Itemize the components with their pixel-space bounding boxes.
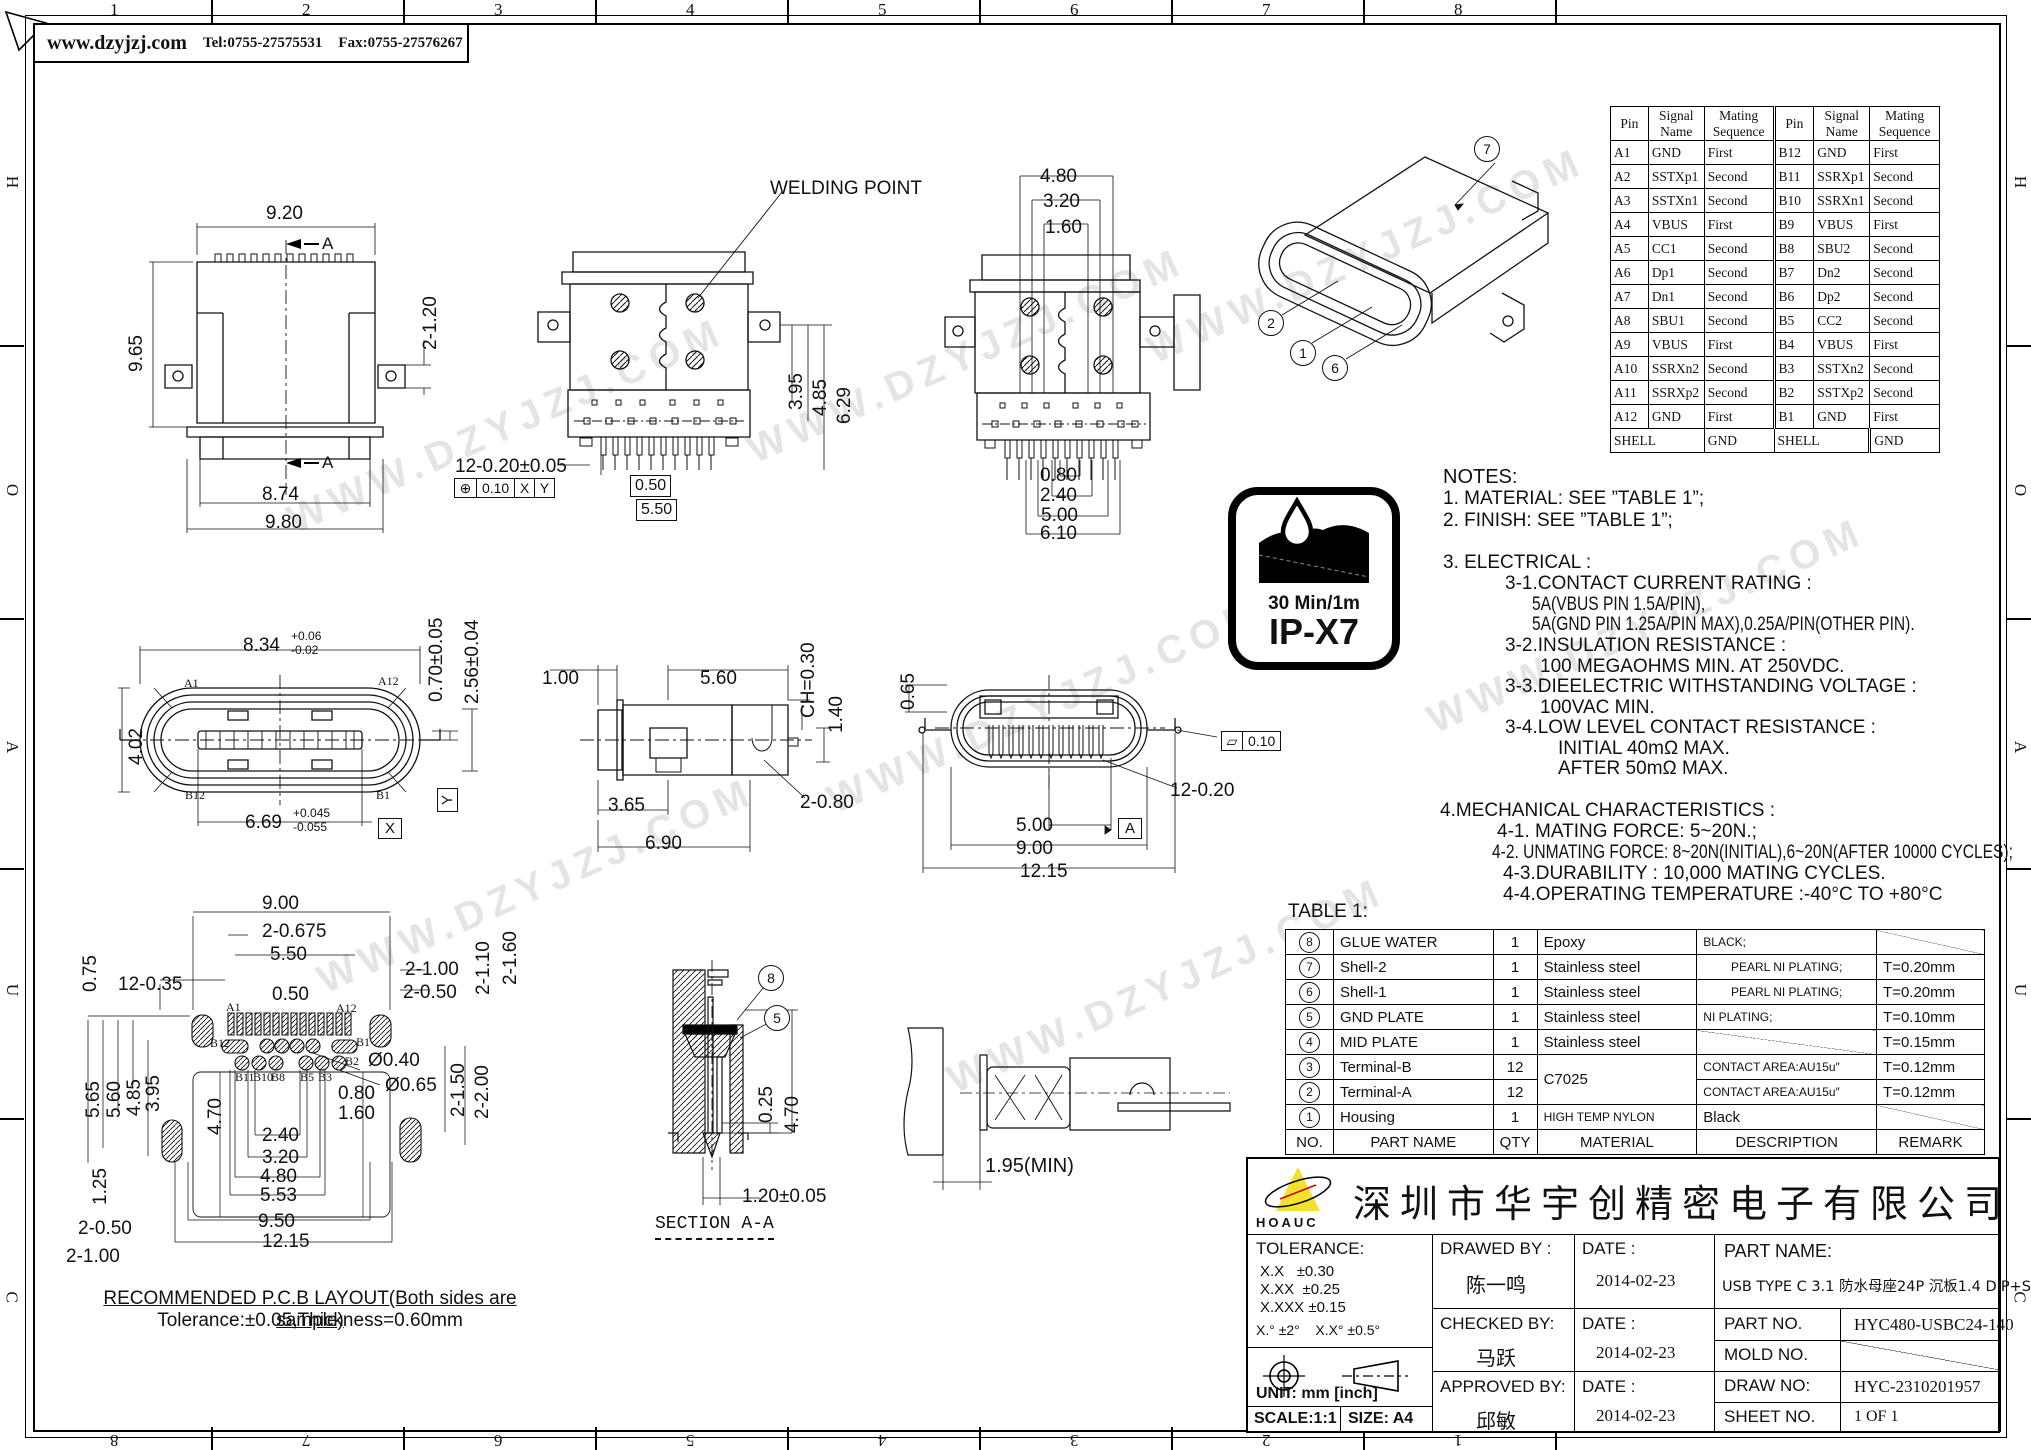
table-row: A1GNDFirstB12GNDFirst [1611,141,1940,165]
cell: Second [1870,357,1940,381]
pin-label: B1 [356,1035,370,1050]
title-block: HOAUC 深圳市华宇创精密电子有限公司 TOLERANCE: X.X ±0.3… [1246,1157,2000,1433]
cell: First [1704,405,1774,429]
cell: Dn1 [1648,285,1704,309]
item-number: 8 [1299,932,1320,953]
basic-dim: 5.50 [636,499,677,521]
item-number: 4 [1299,1032,1320,1053]
dim-label: 5.53 [260,1185,297,1207]
dim-label: 5.60 [104,1081,126,1118]
cell: NI PLATING; [1697,1005,1877,1030]
col-header: Mating Sequence [1704,107,1774,141]
cell [1877,930,1985,955]
side-view-drawing [520,610,880,860]
pin-label: B2 [345,1054,359,1069]
item-number: 2 [1299,1082,1320,1103]
table-row: 6 Shell-1 1 Stainless steel PEARL NI PLA… [1286,980,1985,1005]
callout-number: 2 [1267,315,1275,331]
cell: First [1704,141,1774,165]
col-header: QTY [1493,1130,1537,1155]
dim-label: 0.80 [1040,465,1077,487]
cell: Second [1870,285,1940,309]
cell: MID PLATE [1333,1030,1493,1055]
col-header: NO. [1286,1130,1334,1155]
col-header: MATERIAL [1537,1130,1697,1155]
date-label: DATE : [1582,1314,1636,1334]
table-row: A7Dn1SecondB6Dp2Second [1611,285,1940,309]
table-row: 7 Shell-2 1 Stainless steel PEARL NI PLA… [1286,955,1985,980]
tolerance-row: X.XXX ±0.15 [1260,1299,1346,1316]
table-row: 5 GND PLATE 1 Stainless steel NI PLATING… [1286,1005,1985,1030]
note-line: 4-4.OPERATING TEMPERATURE :-40°C TO +80°… [1503,884,1942,906]
zone-number: 6 [1070,0,1079,20]
table-footer-row: NO. PART NAME QTY MATERIAL DESCRIPTION R… [1286,1130,1985,1155]
cell: Terminal-A [1333,1080,1493,1105]
sheet-no-value: 1 OF 1 [1854,1408,1898,1426]
ruler-tick [979,1427,981,1450]
cell: HIGH TEMP NYLON [1537,1105,1697,1130]
callout-balloon: 7 [1474,136,1500,162]
tolerance-row: X.X ±0.30 [1260,1263,1334,1280]
table-row: A9VBUSFirstB4VBUSFirst [1611,333,1940,357]
table-row: A5CC1SecondB8SBU2Second [1611,237,1940,261]
cell: SSRXp1 [1814,165,1870,189]
cell: T=0.10mm [1877,1005,1985,1030]
dim-label: 0.65 [898,673,920,710]
draw-no-value: HYC-2310201957 [1854,1377,1981,1397]
item-number: 1 [1299,1107,1320,1128]
dim-label: 1.20±0.05 [742,1186,826,1208]
cell: Shell-2 [1333,955,1493,980]
dim-label: 8.74 [262,484,299,506]
table-row: A2SSTXp1SecondB11SSRXp1Second [1611,165,1940,189]
pin-assignment-table: Pin Signal Name Mating Sequence Pin Sign… [1610,106,1940,453]
section-letter: A [322,234,333,254]
zone-number: 4 [686,0,695,20]
zone-letter: A [2,741,22,753]
cell: Dp2 [1814,285,1870,309]
ruler-tick [211,1427,213,1450]
zone-letter: H [2,176,22,188]
cell: GND [1648,405,1704,429]
cell: SHELL [1774,429,1870,453]
fax-text: Fax:0755-27576267 [338,35,462,52]
unit-label: UNIT: mm [inch] [1256,1385,1378,1403]
ip-rating: IP-X7 [1269,615,1359,649]
header-contact-bar: www.dzyjzj.com Tel:0755-27575531 Fax:075… [33,23,469,63]
cell: Second [1870,165,1940,189]
datum-box: A [1118,818,1142,839]
section-marker: A [286,453,333,473]
table-row: 8 GLUE WATER 1 Epoxy BLACK; [1286,930,1985,955]
mold-no-empty-cell [1841,1341,2000,1370]
col-header: Signal Name [1814,107,1870,141]
item-number: 3 [1299,1057,1320,1078]
cell: Housing [1333,1105,1493,1130]
dim-label: 0.75 [80,955,102,992]
dim-label: 0.70±0.05 [426,618,448,702]
datum-ref: X [514,478,535,498]
zone-number: 5 [686,1430,695,1450]
cell: A9 [1611,333,1649,357]
date-label: DATE : [1582,1377,1636,1397]
note-line: INITIAL 40mΩ MAX. [1558,738,1730,760]
cell: T=0.15mm [1877,1030,1985,1055]
section-letter: A [322,453,333,473]
cell: B10 [1774,189,1814,213]
dim-label: 9.20 [266,203,303,225]
cell: A10 [1611,357,1649,381]
cell: Second [1870,189,1940,213]
cell: B12 [1774,141,1814,165]
dim-label: 2.56±0.04 [462,620,484,704]
top-view2-drawing [940,150,1230,550]
isometric-view-drawing [1250,85,1550,385]
note-line: 4-2. UNMATING FORCE: 8~20N(INITIAL),6~20… [1492,842,2013,864]
section-title: SECTION A-A [655,1214,774,1240]
cell: BLACK; [1697,930,1877,955]
cell: Second [1870,261,1940,285]
zone-letter: U [2,984,22,996]
datum-box: X [378,818,402,839]
approved-by-name: 邱敏 [1476,1405,1516,1434]
dim-label: 12-0.35 [118,974,182,996]
dim-label: 3.95 [786,373,808,410]
company-name: 深圳市华宇创精密电子有限公司 [1353,1173,2011,1228]
ruler-tick [1171,0,1173,23]
cell: GND [1814,141,1870,165]
cell: A6 [1611,261,1649,285]
pcb-edge-view-drawing [900,1020,1240,1250]
cell: SSTXp1 [1648,165,1704,189]
zone-number: 7 [302,1430,311,1450]
zone-number: 3 [1070,1430,1079,1450]
dim-tol-lower: -0.055 [293,820,327,834]
size-label: SIZE: A4 [1348,1410,1413,1428]
table-row: A12GNDFirstB1GNDFirst [1611,405,1940,429]
dim-label: 2-1.60 [500,931,522,985]
cell: GLUE WATER [1333,930,1493,955]
sheet-no-label: SHEET NO. [1724,1407,1815,1427]
cell: B6 [1774,285,1814,309]
dim-label: 2-1.20 [420,296,442,350]
mold-no-label: MOLD NO. [1724,1345,1808,1365]
cell: T=0.20mm [1877,980,1985,1005]
dim-label: 6.69 [245,812,282,834]
table-row: 4 MID PLATE 1 Stainless steel T=0.15mm [1286,1030,1985,1055]
zone-number: 8 [1454,0,1463,20]
cell: 1 [1493,1030,1537,1055]
section-marker: A [286,234,333,254]
bottom-view-drawing [885,640,1305,890]
cell: A5 [1611,237,1649,261]
cell: Shell-1 [1333,980,1493,1005]
cell: VBUS [1814,213,1870,237]
dim-label: 5.50 [270,944,307,966]
cell: Second [1704,309,1774,333]
top-view-drawing [530,170,860,480]
dim-label: 12-0.20±0.05 [455,456,567,478]
note-line: 3-4.LOW LEVEL CONTACT RESISTANCE : [1505,717,1876,739]
cell: A11 [1611,381,1649,405]
cell: First [1704,333,1774,357]
ruler-tick [1171,1427,1173,1450]
drawing-sheet: 1 2 3 4 5 6 7 8 8 7 6 5 4 3 2 1 H O A U … [0,0,2031,1450]
dim-label: 12.15 [262,1231,310,1253]
date-label: DATE : [1582,1239,1636,1259]
dim-label: 6.90 [645,833,682,855]
tolerance-row: X.XX ±0.25 [1260,1281,1340,1298]
dim-label: 2.40 [262,1125,299,1147]
dim-label: 4.02 [126,728,148,765]
part-name-value: USB TYPE C 3.1 防水母座24P 沉板1.4 DIP+SMT [1722,1275,2031,1296]
cell: First [1870,213,1940,237]
col-header: Signal Name [1648,107,1704,141]
cell: Dp1 [1648,261,1704,285]
cell: Terminal-B [1333,1055,1493,1080]
drawn-by-label: DRAWED BY : [1440,1239,1551,1259]
dim-label: 3.65 [608,795,645,817]
ruler-tick [2007,1118,2031,1120]
dim-label: CH=0.30 [798,642,820,718]
cell [1877,1105,1985,1130]
scale-label: SCALE:1:1 [1254,1410,1337,1428]
pin-table-header-row: Pin Signal Name Mating Sequence Pin Sign… [1611,107,1940,141]
ruler-tick [0,868,24,870]
cell: SSRXn1 [1814,189,1870,213]
dim-label: 4.70 [782,1096,804,1133]
approved-by-label: APPROVED BY: [1440,1377,1566,1397]
cell: Stainless steel [1537,955,1697,980]
ruler-tick [2007,868,2031,870]
note-line: AFTER 50mΩ MAX. [1558,758,1728,780]
col-header: Pin [1774,107,1814,141]
cell: SSRXn2 [1648,357,1704,381]
dim-label: 2-0.80 [800,792,854,814]
dim-label: 2-1.50 [448,1063,470,1117]
cell: A3 [1611,189,1649,213]
dim-label: 0.25 [756,1086,778,1123]
cell: Second [1704,189,1774,213]
cell: CONTACT AREA:AU15u″ [1697,1080,1877,1105]
callout-balloon: 8 [758,965,784,991]
company-logo-icon [1258,1165,1338,1215]
dim-tol-upper: +0.06 [291,629,321,643]
cell: 1 [1493,1005,1537,1030]
item-number: 7 [1299,957,1320,978]
zone-number: 1 [110,0,119,20]
item-number: 6 [1299,982,1320,1003]
checked-by-name: 马跃 [1476,1342,1516,1371]
date-value: 2014-02-23 [1596,1271,1675,1291]
dim-label: 5.00 [1016,815,1053,837]
cell: B5 [1774,309,1814,333]
ruler-tick [979,0,981,23]
cell: B8 [1774,237,1814,261]
cell: Second [1870,309,1940,333]
callout-number: 7 [1483,141,1491,157]
zone-number: 6 [494,1430,503,1450]
dim-label: 9.00 [262,893,299,915]
note-line: 2. FINISH: SEE ”TABLE 1”; [1443,510,1673,532]
cell: Second [1704,357,1774,381]
cell: A12 [1611,405,1649,429]
dim-label: 9.50 [258,1211,295,1233]
pin-label: B12 [210,1036,230,1051]
note-line: 3-2.INSULATION RESISTANCE : [1505,635,1786,657]
cell: VBUS [1648,213,1704,237]
cell: SHELL [1611,429,1705,453]
ruler-tick [0,618,24,620]
dim-label: 5.65 [83,1081,105,1118]
note-line: 100VAC MIN. [1540,697,1655,719]
item-number: 5 [1299,1007,1320,1028]
ruler-tick [2007,618,2031,620]
col-header: Mating Sequence [1870,107,1940,141]
callout-balloon: 2 [1258,310,1284,336]
note-line: 5A(GND PIN 1.25A/PIN MAX),0.25A/PIN(OTHE… [1532,614,1915,636]
cell: Stainless steel [1537,980,1697,1005]
zone-number: 7 [1262,0,1271,20]
cell: GND [1870,429,1940,453]
callout-balloon: 6 [1322,355,1348,381]
callout-number: 8 [767,970,775,986]
pin-label: A1 [184,676,199,691]
cell: GND [1814,405,1870,429]
date-value: 2014-02-23 [1596,1343,1675,1363]
col-header: DESCRIPTION [1697,1130,1877,1155]
cell: SSTXn2 [1814,357,1870,381]
cell: SSRXp2 [1648,381,1704,405]
dim-label: 1.60 [1045,217,1082,239]
pin-label: B1 [376,788,390,803]
cell: Second [1704,165,1774,189]
datum-ref: Y [534,478,555,498]
zone-number: 2 [1262,1430,1271,1450]
dim-label: Ø0.40 [368,1050,420,1072]
pin-label: B5 [300,1070,314,1085]
dim-label: 9.65 [126,335,148,372]
cell: SSTXn1 [1648,189,1704,213]
note-line: 1. MATERIAL: SEE ”TABLE 1”; [1443,488,1704,510]
cell: SBU1 [1648,309,1704,333]
cell: 1 [1493,955,1537,980]
dim-label: 4.70 [205,1098,227,1135]
callout-number: 1 [1299,345,1307,361]
dim-label: 2-2.00 [472,1065,494,1119]
note-line: 5A(VBUS PIN 1.5A/PIN), [1532,594,1705,616]
cell: VBUS [1648,333,1704,357]
cell: A7 [1611,285,1649,309]
cell: SBU2 [1814,237,1870,261]
zone-number: 8 [110,1430,119,1450]
dim-label: 1.00 [542,668,579,690]
dim-label: 1.40 [826,696,848,733]
ruler-tick [2007,345,2031,347]
dim-label: 2-1.00 [405,959,459,981]
datum-box: Y [437,788,458,812]
cell: CONTACT AREA:AU15u″ [1697,1055,1877,1080]
position-symbol-icon: ⊕ [454,478,478,498]
position-tolerance-frame: ⊕ 0.10 X Y [455,478,555,498]
cell: 1 [1493,980,1537,1005]
cell: First [1870,405,1940,429]
zone-letter: O [2,484,22,496]
cell: A2 [1611,165,1649,189]
pin-label: A12 [336,1001,357,1016]
cell: T=0.12mm [1877,1055,1985,1080]
note-line: 3-1.CONTACT CURRENT RATING : [1505,573,1812,595]
table1-title: TABLE 1: [1288,901,1368,923]
zone-letter: A [2010,741,2030,753]
dim-label: Ø0.65 [385,1075,437,1097]
callout-balloon: 5 [764,1005,790,1031]
zone-letter: H [2010,176,2030,188]
note-line: 3-3.DIEELECTRIC WITHSTANDING VOLTAGE : [1505,676,1917,698]
dim-label: 0.50 [272,984,309,1006]
flatness-symbol-icon: ▱ [1221,731,1244,751]
dim-label: 8.34 [243,635,280,657]
dim-label: 9.80 [265,512,302,534]
ruler-tick [787,1427,789,1450]
dim-tol-lower: -0.02 [291,643,318,657]
pin-label: B8 [271,1070,285,1085]
cell: GND [1648,141,1704,165]
tolerance-label: TOLERANCE: [1256,1239,1364,1259]
date-value: 2014-02-23 [1596,1406,1675,1426]
cell: C7025 [1537,1055,1697,1105]
dim-label: 9.00 [1016,838,1053,860]
welding-point-label: WELDING POINT [770,178,922,200]
waterproof-icon [1249,495,1379,591]
ipx7-badge: 30 Min/1m IP-X7 [1228,487,1400,670]
dim-label: 1.95(MIN) [985,1155,1074,1178]
dim-label: 6.10 [1040,523,1077,545]
callout-number: 6 [1331,360,1339,376]
zone-number: 5 [878,0,887,20]
dim-label: 2-0.50 [78,1218,132,1240]
note-line: 4-1. MATING FORCE: 5~20N.; [1497,821,1757,843]
cell: T=0.12mm [1877,1080,1985,1105]
pin-table-shell-row: SHELL GND SHELL GND [1611,429,1940,453]
tolerance-value: 0.10 [476,478,515,498]
note-line: NOTES: [1443,466,1517,489]
cell: First [1704,213,1774,237]
cell: A8 [1611,309,1649,333]
col-header: REMARK [1877,1130,1985,1155]
ruler-tick [595,0,597,23]
pin-label: B10 [253,1070,273,1085]
cell: VBUS [1814,333,1870,357]
zone-letter: C [2,1291,22,1302]
note-line: 3. ELECTRICAL : [1443,552,1591,574]
cell: Stainless steel [1537,1030,1697,1055]
cell: A1 [1611,141,1649,165]
cell: 12 [1493,1080,1537,1105]
zone-number: 4 [878,1430,887,1450]
note-line: 100 MEGAOHMS MIN. AT 250VDC. [1540,656,1844,678]
table-row: A11SSRXp2SecondB2SSTXp2Second [1611,381,1940,405]
ruler-tick [1363,0,1365,23]
part-no-label: PART NO. [1724,1314,1802,1334]
dim-label: 2-0.675 [262,921,326,943]
note-line: 4-3.DURABILITY : 10,000 MATING CYCLES. [1503,863,1886,885]
pin-label: B11 [235,1070,255,1085]
dim-label: 4.85 [810,379,832,416]
dim-label: 3.95 [143,1075,165,1112]
cell: CC2 [1814,309,1870,333]
angle-tolerance: X.° ±2° X.X° ±0.5° [1256,1322,1380,1338]
